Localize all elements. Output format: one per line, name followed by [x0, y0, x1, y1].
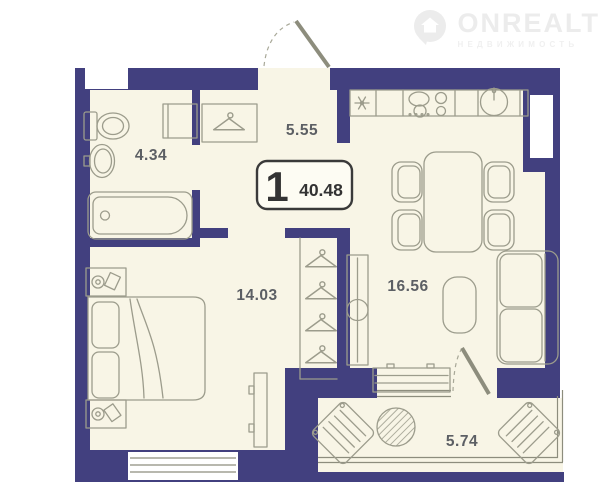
house-pin-icon: [409, 7, 451, 49]
logo-subtitle: НЕДВИЖИМОСТЬ: [458, 40, 579, 49]
logo: ONREALT НЕДВИЖИМОСТЬ: [409, 7, 601, 49]
rooms-count: 1: [265, 163, 288, 210]
round-table: [377, 408, 415, 446]
bedroom-window: [128, 452, 238, 480]
entrance-door: [264, 21, 329, 67]
room-area-label: 16.56: [387, 278, 428, 295]
wall-niche: [85, 68, 128, 89]
logo-text: ONREALT НЕДВИЖИМОСТЬ: [458, 7, 601, 49]
room-area-label: 4.34: [135, 147, 167, 164]
floor: [75, 68, 563, 472]
room-area-label: 5.74: [446, 433, 478, 450]
summary-badge: 1 40.48: [257, 161, 352, 210]
double-bed: [88, 297, 205, 400]
room-area-label: 5.55: [286, 122, 318, 139]
shaft-niche: [530, 95, 553, 158]
logo-brand: ONREALT: [458, 7, 601, 39]
total-area: 40.48: [299, 180, 343, 200]
floor-plan-image: 4.34 5.55 14.03 16.56 5.74 1 40.48 ONREA…: [0, 0, 608, 482]
floor-plan: 4.34 5.55 14.03 16.56 5.74 1 40.48: [0, 0, 608, 482]
room-area-label: 14.03: [236, 287, 277, 304]
